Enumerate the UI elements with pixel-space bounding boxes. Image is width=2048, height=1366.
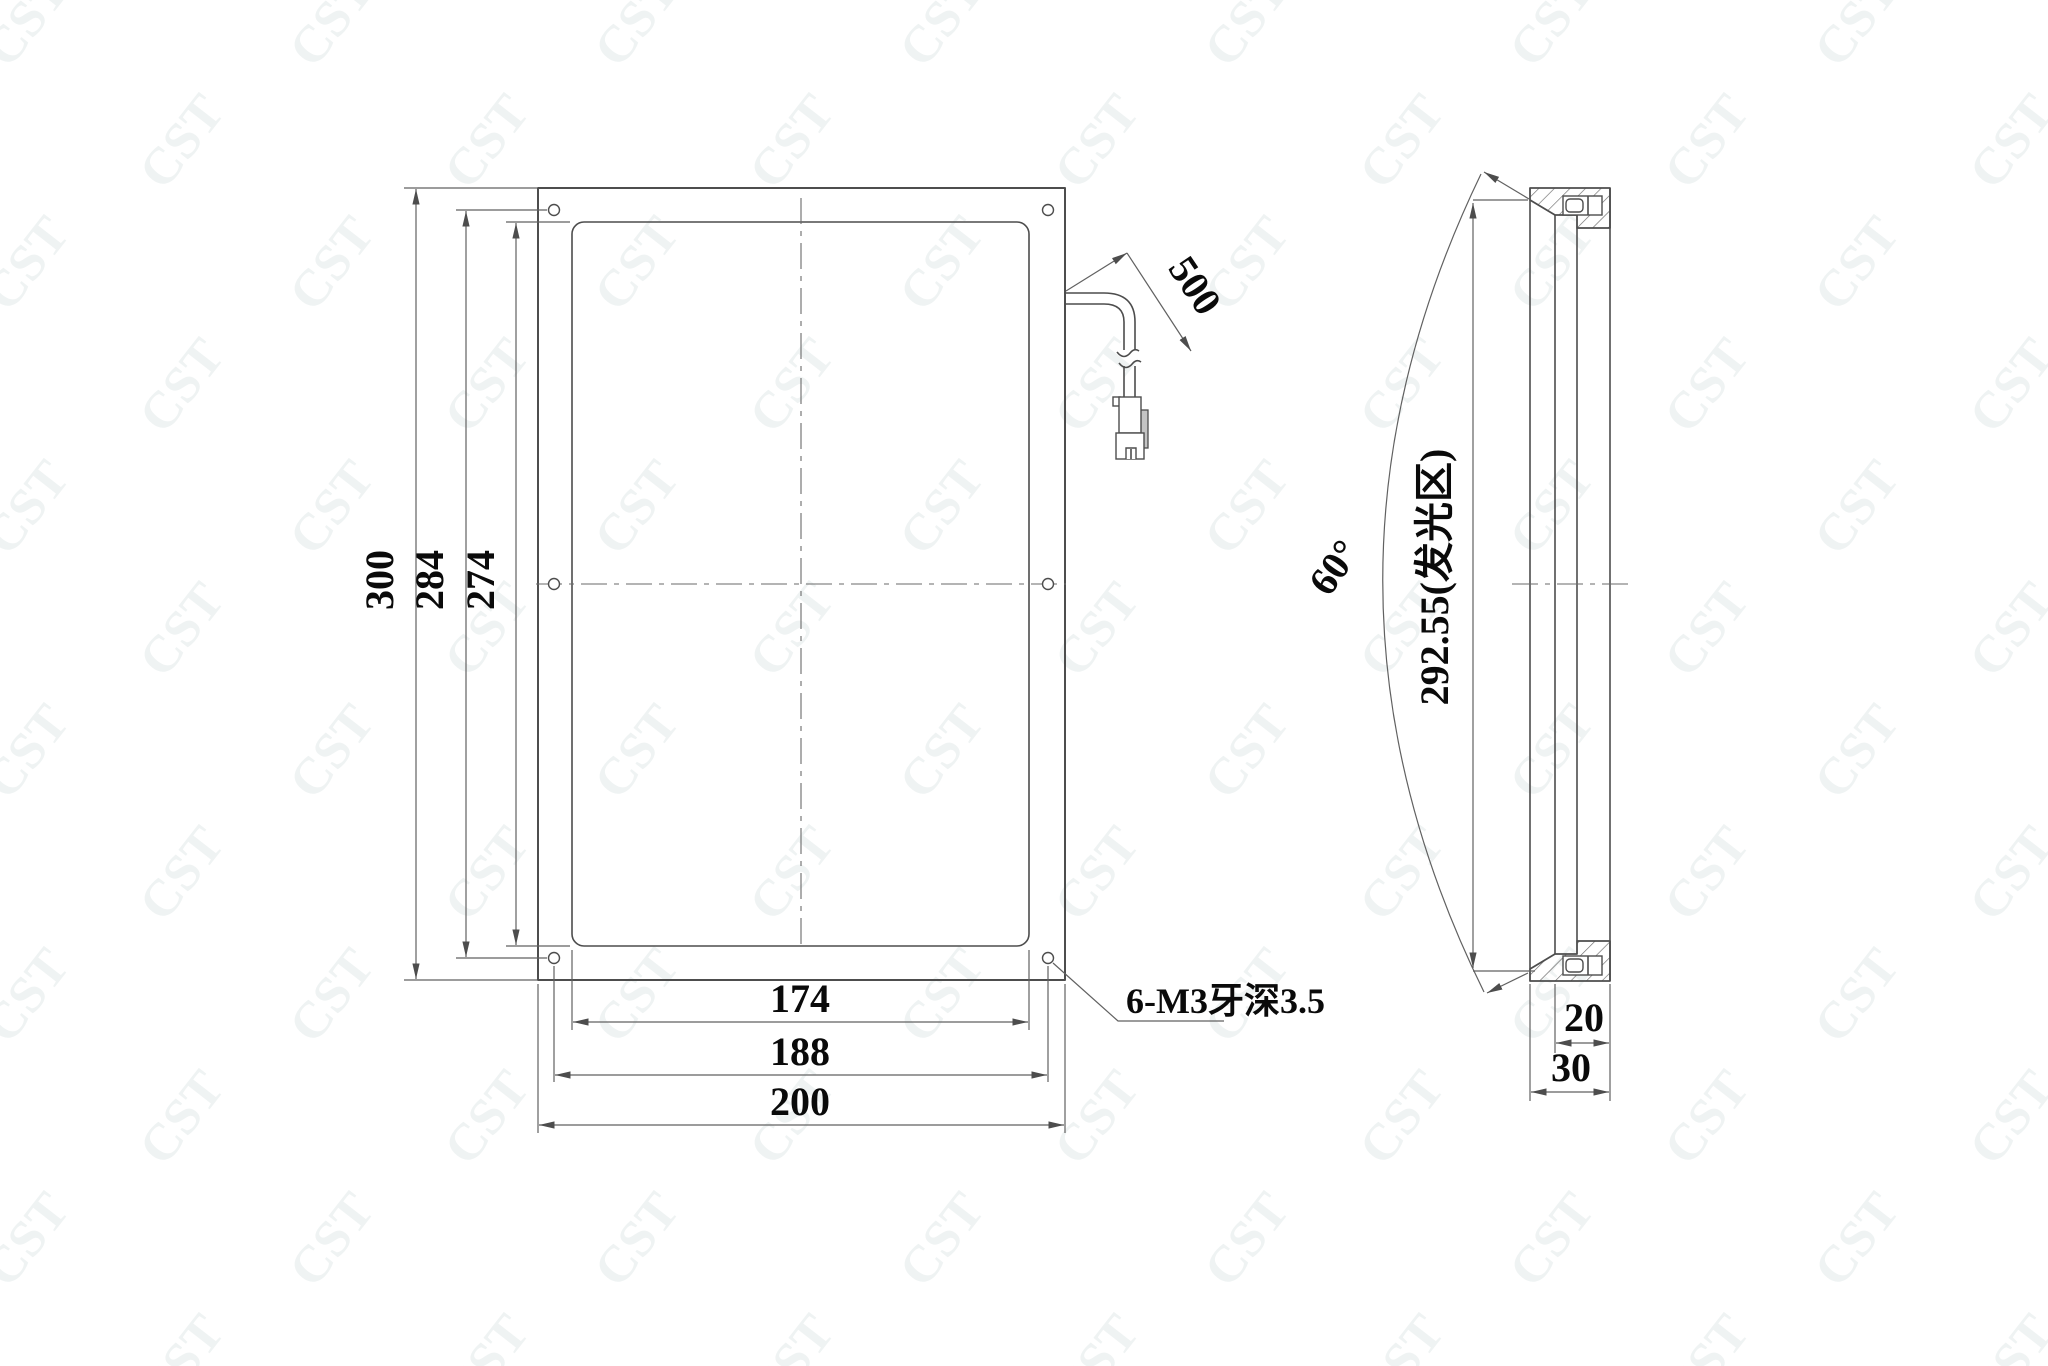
watermark-text: CST bbox=[278, 1182, 385, 1297]
watermark-text: CST bbox=[1803, 1182, 1910, 1297]
watermark-text: CST bbox=[128, 84, 235, 199]
watermark-text: CST bbox=[888, 1182, 995, 1297]
watermark-text: CST bbox=[1803, 450, 1910, 565]
watermark-text: CST bbox=[433, 1060, 540, 1175]
watermark-text: CST bbox=[583, 206, 690, 321]
watermark-text: CST bbox=[1803, 0, 1910, 77]
watermark-text: CST bbox=[128, 816, 235, 931]
watermark-text: CST bbox=[433, 1304, 540, 1366]
watermark-text: CST bbox=[1958, 572, 2048, 687]
luminous-height-dim bbox=[1473, 200, 1535, 971]
dim-30-label: 30 bbox=[1551, 1045, 1591, 1090]
watermark-text: CST bbox=[1193, 1182, 1300, 1297]
mounting-hole bbox=[549, 205, 560, 216]
watermark-text: CST bbox=[1958, 1304, 2048, 1366]
watermark-text: CST bbox=[433, 328, 540, 443]
watermark-text: CST bbox=[1653, 816, 1760, 931]
watermark-text: CST bbox=[278, 938, 385, 1053]
watermark-text: CST bbox=[583, 0, 690, 77]
mounting-hole bbox=[1043, 205, 1054, 216]
watermark-text: CST bbox=[278, 694, 385, 809]
watermark-text: CST bbox=[1498, 0, 1605, 77]
watermark-text: CST bbox=[1803, 938, 1910, 1053]
watermark-text: CST bbox=[1653, 1304, 1760, 1366]
watermark-text: CST bbox=[1193, 694, 1300, 809]
watermark-layer: CSTCSTCSTCSTCSTCSTCSTCSTCSTCSTCSTCSTCSTC… bbox=[0, 0, 2048, 1366]
mounting-hole bbox=[1043, 579, 1054, 590]
watermark-text: CST bbox=[1348, 1304, 1455, 1366]
watermark-text: CST bbox=[128, 1060, 235, 1175]
mounting-hole bbox=[549, 579, 560, 590]
watermark-text: CST bbox=[0, 938, 81, 1053]
watermark-text: CST bbox=[1043, 1304, 1150, 1366]
watermark-text: CST bbox=[888, 450, 995, 565]
screw-hole-top bbox=[1563, 196, 1602, 215]
screw-hole-bottom bbox=[1563, 956, 1602, 975]
watermark-text: CST bbox=[278, 206, 385, 321]
watermark-text: CST bbox=[1348, 816, 1455, 931]
beam-ray-top bbox=[1484, 172, 1529, 199]
watermark-text: CST bbox=[1193, 0, 1300, 77]
watermark-text: CST bbox=[0, 450, 81, 565]
watermark-text: CST bbox=[0, 1182, 81, 1297]
dim-174-label: 174 bbox=[770, 976, 830, 1021]
watermark-text: CST bbox=[1043, 84, 1150, 199]
watermark-text: CST bbox=[583, 450, 690, 565]
side-view: 292.55(发光区) 60° 20 30 bbox=[1299, 172, 1634, 1101]
watermark-text: CST bbox=[1498, 1182, 1605, 1297]
watermark-text: CST bbox=[1958, 816, 2048, 931]
watermark-text: CST bbox=[888, 938, 995, 1053]
watermark-text: CST bbox=[1498, 450, 1605, 565]
watermark-text: CST bbox=[1043, 816, 1150, 931]
mounting-hole bbox=[549, 953, 560, 964]
dim-200-label: 200 bbox=[770, 1079, 830, 1124]
watermark-text: CST bbox=[1498, 694, 1605, 809]
watermark-text: CST bbox=[1958, 1060, 2048, 1175]
watermark-text: CST bbox=[0, 0, 81, 77]
watermark-text: CST bbox=[1043, 572, 1150, 687]
watermark-text: CST bbox=[1193, 450, 1300, 565]
watermark-text: CST bbox=[738, 816, 845, 931]
watermark-text: CST bbox=[0, 206, 81, 321]
watermark-text: CST bbox=[433, 84, 540, 199]
watermark-text: CST bbox=[1653, 572, 1760, 687]
front-view: 300 284 274 174 188 200 6-M3牙深3.5 bbox=[357, 188, 1325, 1133]
watermark-text: CST bbox=[1653, 84, 1760, 199]
watermark-text: CST bbox=[0, 694, 81, 809]
watermark-text: CST bbox=[278, 450, 385, 565]
watermark-text: CST bbox=[1653, 328, 1760, 443]
watermark-text: CST bbox=[1348, 328, 1455, 443]
watermark-text: CST bbox=[738, 572, 845, 687]
watermark-text: CST bbox=[1803, 206, 1910, 321]
connector-body bbox=[1119, 397, 1141, 433]
luminous-height-label: 292.55(发光区) bbox=[1412, 449, 1457, 706]
watermark-text: CST bbox=[1653, 1060, 1760, 1175]
watermark-text: CST bbox=[128, 572, 235, 687]
watermark-text: CST bbox=[1043, 1060, 1150, 1175]
dim-274-label: 274 bbox=[458, 550, 503, 610]
watermark-text: CST bbox=[1958, 84, 2048, 199]
watermark-text: CST bbox=[738, 84, 845, 199]
watermark-text: CST bbox=[583, 1182, 690, 1297]
watermark-text: CST bbox=[128, 328, 235, 443]
dim-300-label: 300 bbox=[357, 550, 402, 610]
watermark-text: CST bbox=[888, 694, 995, 809]
watermark-text: CST bbox=[128, 1304, 235, 1366]
mounting-note-label: 6-M3牙深3.5 bbox=[1126, 981, 1325, 1021]
technical-drawing: CSTCSTCSTCSTCSTCSTCSTCSTCSTCSTCSTCSTCSTC… bbox=[0, 0, 2048, 1366]
beam-angle-label: 60° bbox=[1299, 531, 1368, 603]
watermark-text: CST bbox=[583, 694, 690, 809]
dim-284-label: 284 bbox=[407, 550, 452, 610]
dim-188-label: 188 bbox=[770, 1029, 830, 1074]
watermark-text: CST bbox=[1348, 84, 1455, 199]
watermark-text: CST bbox=[278, 0, 385, 77]
watermark-text: CST bbox=[1803, 694, 1910, 809]
watermark-text: CST bbox=[1348, 1060, 1455, 1175]
cable-connector bbox=[1113, 397, 1148, 459]
mounting-hole bbox=[1043, 953, 1054, 964]
watermark-text: CST bbox=[738, 328, 845, 443]
dim-20-label: 20 bbox=[1564, 995, 1604, 1040]
watermark-text: CST bbox=[1958, 328, 2048, 443]
watermark-text: CST bbox=[738, 1304, 845, 1366]
watermark-text: CST bbox=[583, 938, 690, 1053]
watermark-text: CST bbox=[888, 0, 995, 77]
watermark-text: CST bbox=[888, 206, 995, 321]
watermark-text: CST bbox=[433, 816, 540, 931]
